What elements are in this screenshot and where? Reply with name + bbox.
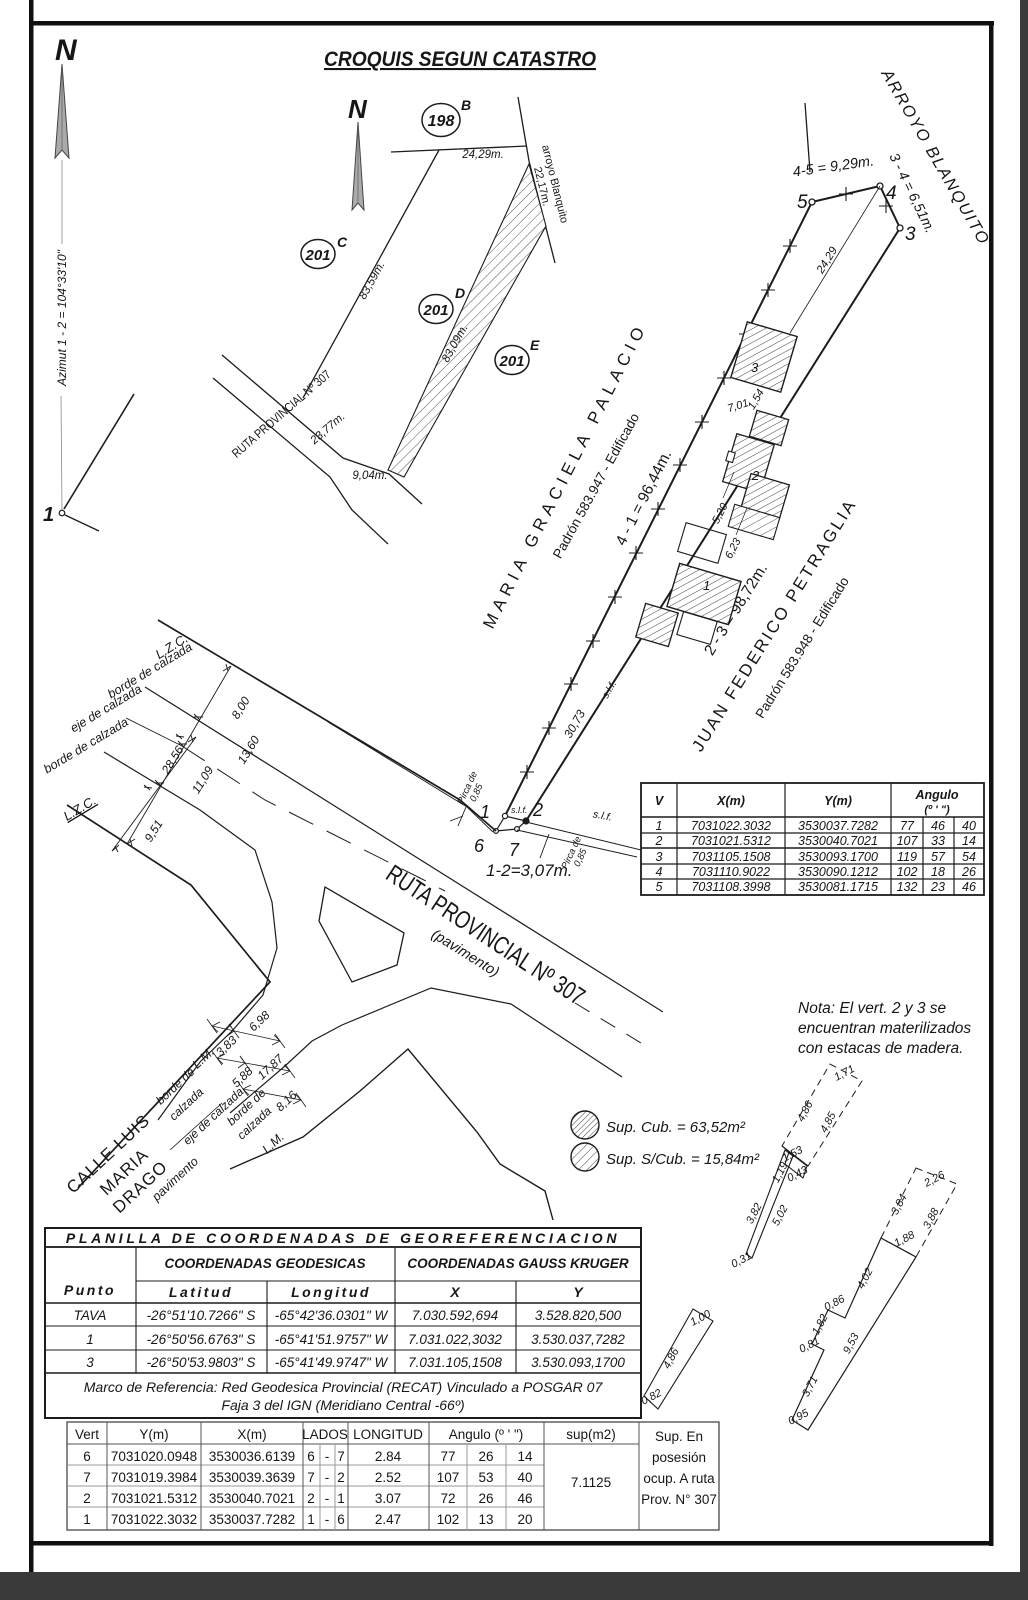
svg-text:Azimut 1 - 2 = 104°33'10": Azimut 1 - 2 = 104°33'10" — [55, 249, 69, 387]
svg-text:26: 26 — [961, 865, 976, 879]
svg-text:102: 102 — [437, 1512, 460, 1527]
svg-text:7.031.105,1508: 7.031.105,1508 — [408, 1355, 502, 1370]
svg-text:3530093.1700: 3530093.1700 — [798, 850, 878, 864]
svg-text:3530037.7282: 3530037.7282 — [798, 819, 878, 833]
svg-text:Latitud: Latitud — [169, 1284, 233, 1300]
svg-text:3: 3 — [751, 360, 759, 375]
svg-text:72: 72 — [440, 1491, 455, 1506]
svg-text:6: 6 — [474, 836, 485, 856]
svg-text:6: 6 — [83, 1449, 91, 1464]
svg-text:-65°41'49.9747" W: -65°41'49.9747" W — [275, 1355, 389, 1370]
svg-text:26: 26 — [478, 1449, 493, 1464]
svg-text:14: 14 — [962, 834, 976, 848]
svg-text:33: 33 — [931, 834, 945, 848]
svg-text:132: 132 — [897, 880, 918, 894]
svg-text:-26°51'10.7266" S: -26°51'10.7266" S — [147, 1308, 256, 1323]
svg-text:7031022.3032: 7031022.3032 — [111, 1512, 197, 1527]
svg-text:6: 6 — [307, 1449, 315, 1464]
svg-text:D: D — [455, 285, 465, 301]
svg-text:-65°42'36.0301" W: -65°42'36.0301" W — [275, 1308, 389, 1323]
svg-text:ocup. A ruta: ocup. A ruta — [643, 1471, 715, 1486]
svg-text:4: 4 — [886, 183, 897, 204]
svg-text:1: 1 — [307, 1512, 315, 1527]
svg-text:7031105.1508: 7031105.1508 — [691, 850, 770, 864]
svg-text:1: 1 — [86, 1332, 94, 1347]
svg-text:X: X — [449, 1284, 461, 1300]
svg-text:X(m): X(m) — [237, 1427, 266, 1442]
svg-text:46: 46 — [931, 819, 945, 833]
svg-text:7031019.3984: 7031019.3984 — [111, 1470, 198, 1485]
svg-text:7031110.9022: 7031110.9022 — [692, 865, 770, 879]
svg-text:con estacas de madera.: con estacas de madera. — [798, 1040, 963, 1057]
svg-text:1: 1 — [703, 578, 710, 593]
svg-text:3530040.7021: 3530040.7021 — [209, 1491, 295, 1506]
svg-text:Prov. N° 307: Prov. N° 307 — [641, 1492, 717, 1507]
svg-text:-26°50'56.6763" S: -26°50'56.6763" S — [147, 1332, 256, 1347]
svg-text:1: 1 — [656, 819, 663, 833]
svg-text:COORDENADAS GAUSS KRUGER: COORDENADAS GAUSS KRUGER — [407, 1256, 629, 1271]
svg-text:14: 14 — [517, 1449, 533, 1464]
svg-text:Y(m): Y(m) — [824, 794, 852, 808]
svg-text:46: 46 — [517, 1491, 532, 1506]
svg-text:198: 198 — [428, 113, 455, 130]
svg-text:7031108.3998: 7031108.3998 — [691, 880, 770, 894]
svg-text:3530081.1715: 3530081.1715 — [798, 880, 878, 894]
svg-text:2.47: 2.47 — [375, 1512, 401, 1527]
svg-text:encuentran materilizados: encuentran materilizados — [798, 1020, 971, 1037]
svg-text:7: 7 — [83, 1470, 91, 1485]
svg-text:Sup. Cub. = 63,52m²: Sup. Cub. = 63,52m² — [606, 1119, 746, 1136]
svg-text:107: 107 — [437, 1470, 460, 1485]
svg-text:3530040.7021: 3530040.7021 — [798, 834, 878, 848]
svg-text:(º ' "): (º ' ") — [924, 804, 950, 816]
svg-text:2.84: 2.84 — [375, 1449, 402, 1464]
svg-text:7.1125: 7.1125 — [571, 1475, 611, 1490]
svg-text:2: 2 — [307, 1491, 315, 1506]
svg-text:7: 7 — [337, 1449, 345, 1464]
svg-text:7031021.5312: 7031021.5312 — [691, 834, 771, 848]
svg-text:Punto: Punto — [64, 1282, 116, 1298]
svg-text:20: 20 — [517, 1512, 532, 1527]
svg-text:Nota: El vert. 2 y 3 se: Nota: El vert. 2 y 3 se — [798, 1000, 947, 1017]
svg-text:201: 201 — [422, 302, 448, 319]
svg-text:3530090.1212: 3530090.1212 — [798, 865, 878, 879]
svg-text:7.030.592,694: 7.030.592,694 — [412, 1308, 498, 1323]
svg-text:s.l.f.: s.l.f. — [511, 805, 528, 815]
svg-text:24,29m.: 24,29m. — [461, 149, 504, 161]
svg-text:6: 6 — [337, 1512, 345, 1527]
svg-text:-: - — [325, 1512, 330, 1527]
svg-text:Angulo (º ' "): Angulo (º ' ") — [449, 1427, 524, 1442]
svg-text:Sup. S/Cub. = 15,84m²: Sup. S/Cub. = 15,84m² — [606, 1151, 760, 1168]
svg-text:posesión: posesión — [652, 1450, 706, 1465]
svg-text:13: 13 — [478, 1512, 493, 1527]
svg-text:Faja 3 del IGN (Meridiano Cen: Faja 3 del IGN (Meridiano Central -66º) — [221, 1397, 464, 1413]
svg-text:3: 3 — [905, 224, 916, 245]
svg-text:B: B — [461, 97, 471, 113]
svg-text:2: 2 — [751, 468, 760, 483]
svg-text:TAVA: TAVA — [74, 1308, 107, 1323]
svg-text:102: 102 — [897, 865, 918, 879]
svg-text:2: 2 — [532, 800, 543, 820]
svg-text:5: 5 — [797, 192, 808, 213]
svg-text:23: 23 — [930, 880, 945, 894]
svg-text:-65°41'51.9757" W: -65°41'51.9757" W — [275, 1332, 389, 1347]
svg-text:X(m): X(m) — [716, 794, 745, 808]
svg-text:3530036.6139: 3530036.6139 — [209, 1449, 295, 1464]
svg-text:1: 1 — [43, 504, 54, 526]
svg-text:3: 3 — [86, 1355, 94, 1370]
svg-text:-26°50'53.9803" S: -26°50'53.9803" S — [147, 1355, 256, 1370]
svg-text:40: 40 — [962, 819, 976, 833]
svg-text:2.52: 2.52 — [375, 1470, 401, 1485]
svg-text:7: 7 — [307, 1470, 315, 1485]
svg-text:107: 107 — [897, 834, 919, 848]
svg-text:Marco de Referencia: Red Geode: Marco de Referencia: Red Geodesica Provi… — [84, 1379, 604, 1395]
svg-text:3530039.3639: 3530039.3639 — [209, 1470, 295, 1485]
svg-text:COORDENADAS GEODESICAS: COORDENADAS GEODESICAS — [164, 1256, 365, 1271]
svg-text:N: N — [348, 94, 368, 124]
svg-text:7031020.0948: 7031020.0948 — [111, 1449, 197, 1464]
svg-text:1: 1 — [337, 1491, 345, 1506]
svg-text:119: 119 — [897, 850, 917, 864]
svg-text:3530037.7282: 3530037.7282 — [209, 1512, 295, 1527]
svg-text:54: 54 — [962, 850, 976, 864]
svg-text:Sup. En: Sup. En — [655, 1429, 703, 1444]
svg-text:46: 46 — [962, 880, 976, 894]
svg-text:201: 201 — [498, 353, 524, 370]
svg-text:2: 2 — [83, 1491, 91, 1506]
svg-text:7.031.022,3032: 7.031.022,3032 — [408, 1332, 502, 1347]
svg-text:-: - — [325, 1491, 330, 1506]
svg-text:3.530.093,1700: 3.530.093,1700 — [531, 1355, 625, 1370]
svg-text:40: 40 — [517, 1470, 532, 1485]
svg-text:77: 77 — [440, 1449, 455, 1464]
svg-text:57: 57 — [931, 850, 946, 864]
svg-text:7031021.5312: 7031021.5312 — [111, 1491, 197, 1506]
svg-text:CROQUIS SEGUN CATASTRO: CROQUIS SEGUN CATASTRO — [324, 48, 596, 71]
svg-text:N: N — [55, 34, 78, 67]
svg-text:Angulo: Angulo — [914, 788, 958, 802]
svg-text:Longitud: Longitud — [291, 1284, 371, 1300]
svg-text:5: 5 — [656, 880, 663, 894]
svg-text:3.528.820,500: 3.528.820,500 — [535, 1308, 622, 1323]
svg-text:LADOS: LADOS — [302, 1427, 348, 1442]
svg-text:77: 77 — [900, 819, 915, 833]
svg-text:C: C — [337, 234, 348, 250]
svg-text:2: 2 — [655, 834, 663, 848]
svg-text:-: - — [325, 1449, 330, 1464]
svg-text:201: 201 — [304, 247, 330, 264]
svg-text:1: 1 — [83, 1512, 91, 1527]
svg-text:Y(m): Y(m) — [139, 1427, 168, 1442]
svg-text:E: E — [530, 337, 540, 353]
svg-text:3: 3 — [656, 850, 663, 864]
svg-text:4: 4 — [656, 865, 663, 879]
svg-text:26: 26 — [478, 1491, 493, 1506]
svg-text:2: 2 — [337, 1470, 345, 1485]
svg-text:7031022.3032: 7031022.3032 — [691, 819, 771, 833]
svg-text:9,04m.: 9,04m. — [352, 470, 387, 482]
svg-text:LONGITUD: LONGITUD — [353, 1427, 423, 1442]
svg-text:53: 53 — [478, 1470, 493, 1485]
svg-text:PLANILLA DE COORDENADAS DE: PLANILLA DE COORDENADAS DE GEOREFERENCIA… — [66, 1230, 620, 1246]
svg-text:-: - — [325, 1470, 330, 1485]
svg-text:3.530.037,7282: 3.530.037,7282 — [531, 1332, 625, 1347]
svg-text:Vert: Vert — [75, 1427, 99, 1442]
svg-text:18: 18 — [931, 865, 945, 879]
svg-text:7: 7 — [509, 840, 520, 860]
svg-text:3.07: 3.07 — [375, 1491, 401, 1506]
svg-text:sup(m2): sup(m2) — [566, 1427, 616, 1442]
